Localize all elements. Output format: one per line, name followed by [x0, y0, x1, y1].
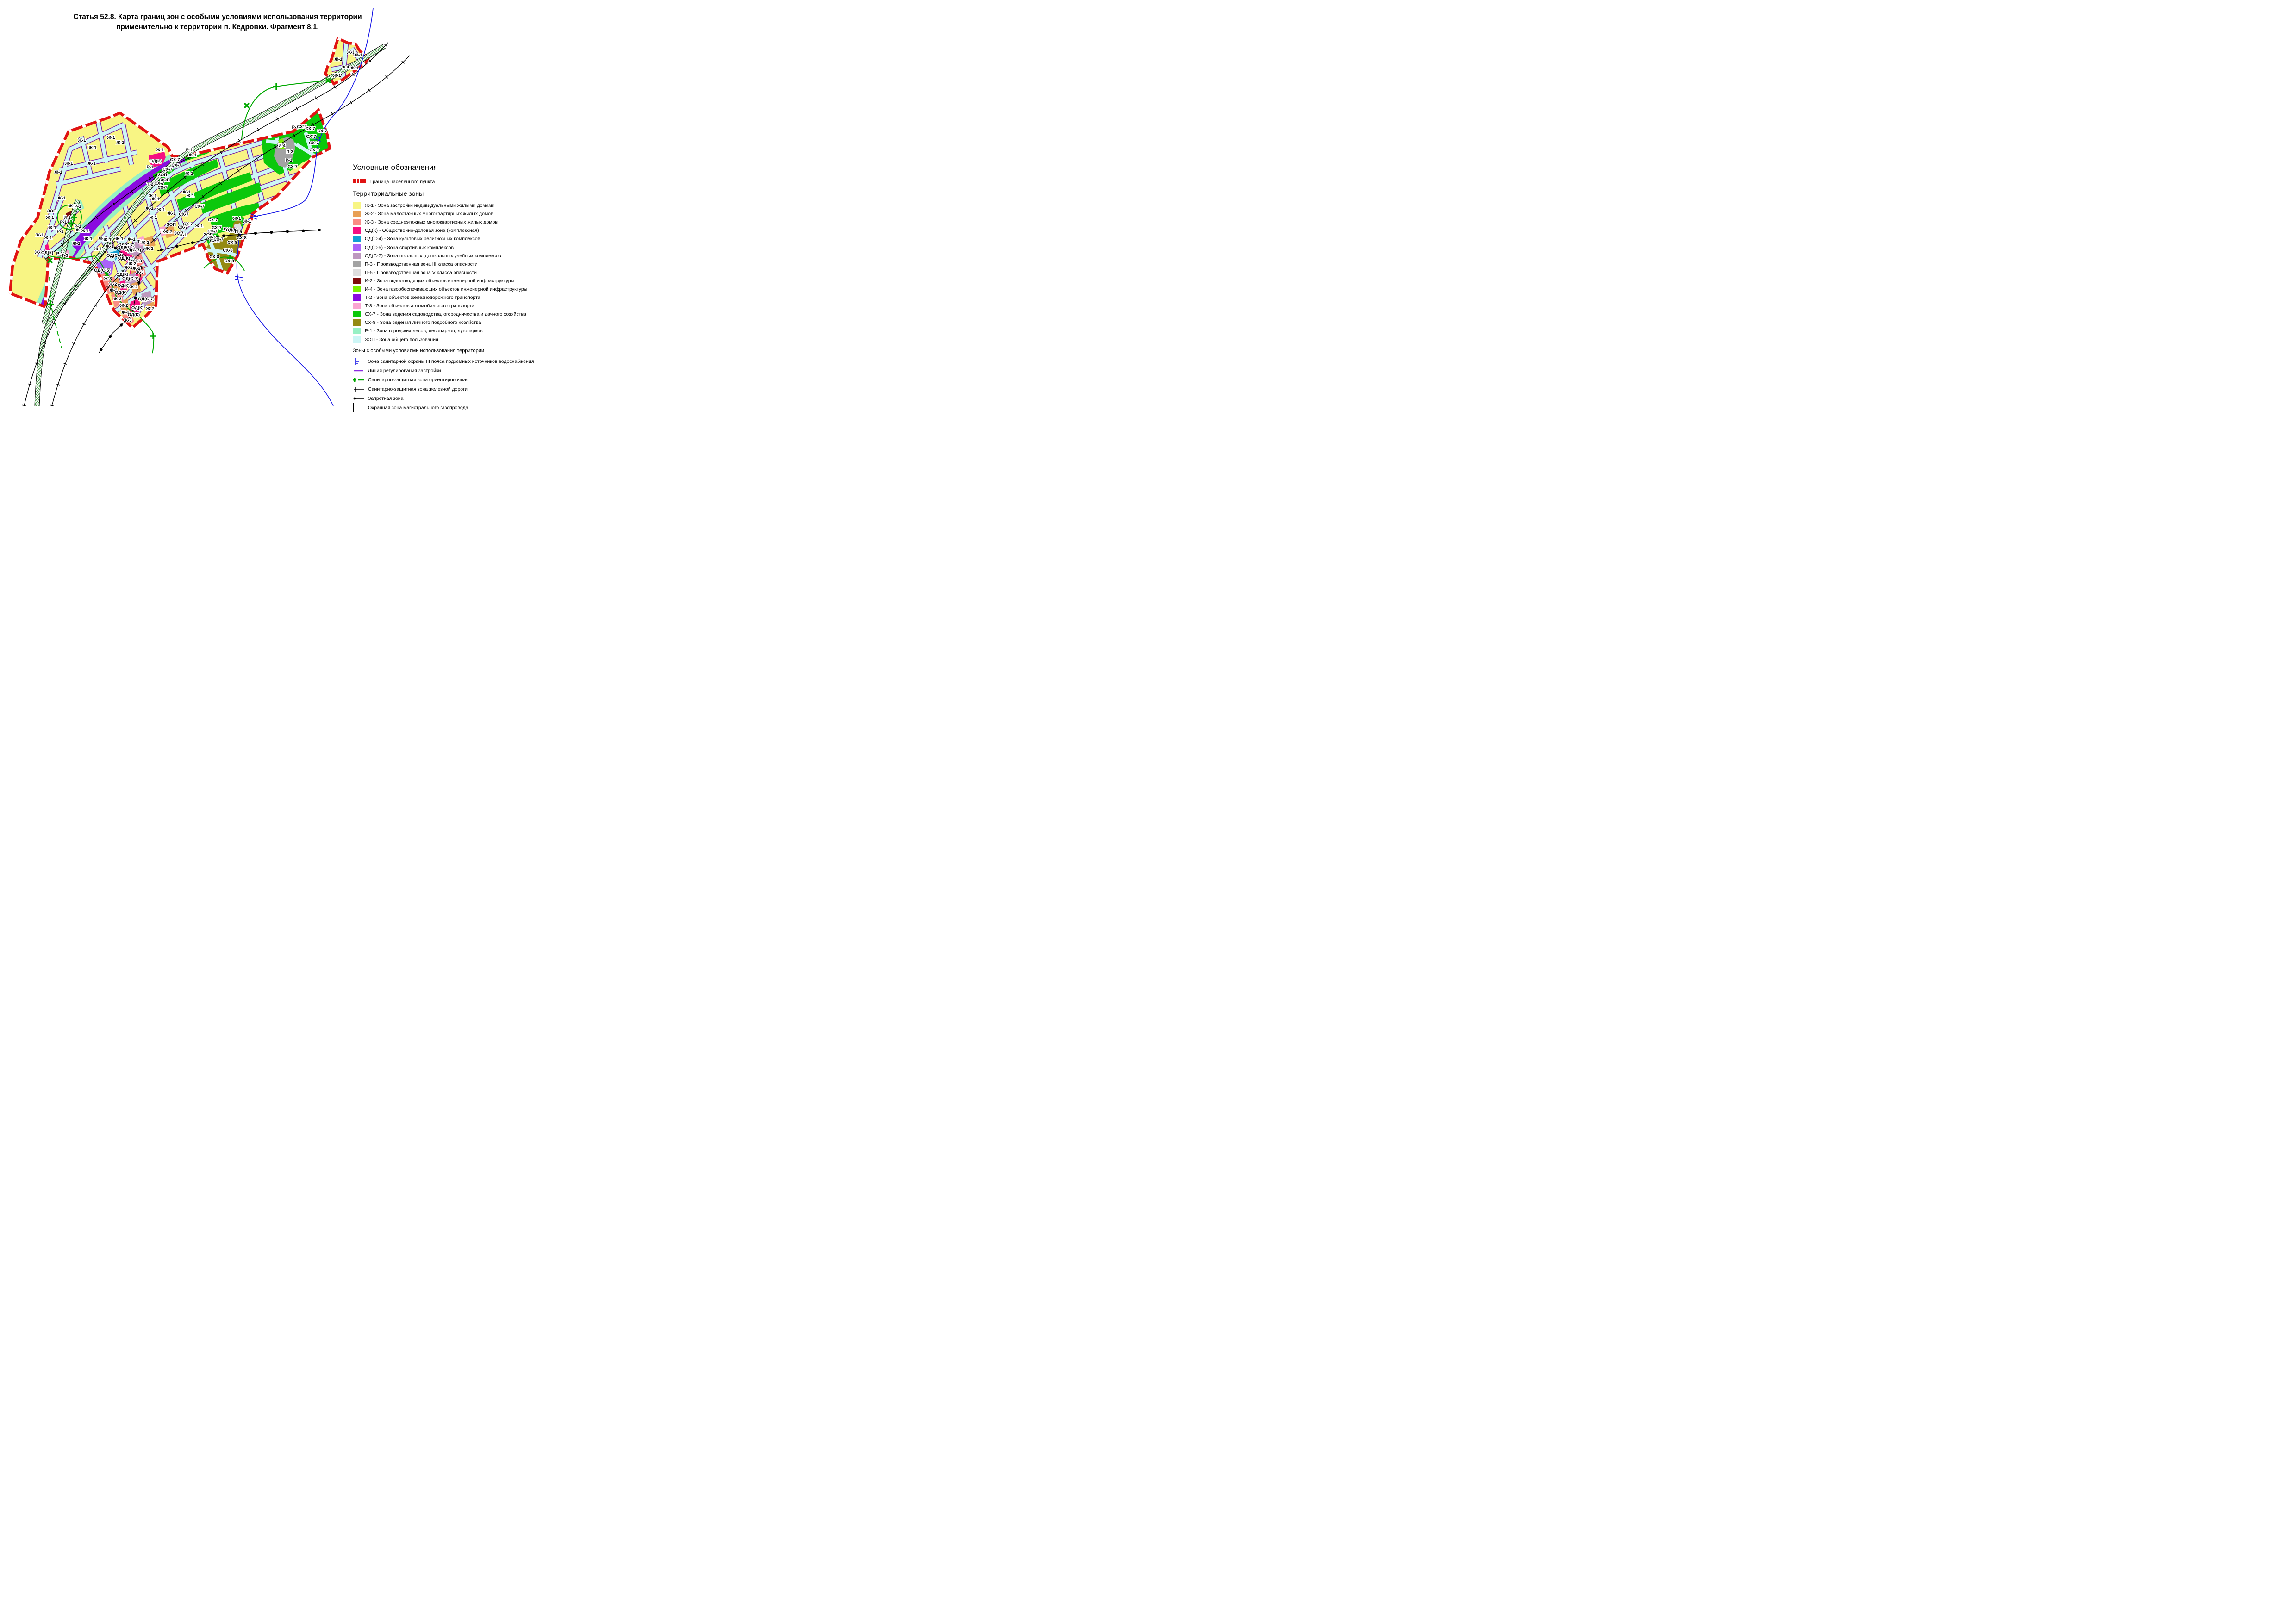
zone-label: ОД(К): [115, 290, 127, 295]
zone-label: Ж-1: [35, 233, 44, 238]
zone-label: Ж-1: [57, 196, 66, 201]
legend: Условные обозначения Граница населенного…: [353, 163, 574, 413]
zone-label: Ж-1: [84, 236, 93, 242]
zone-label: Ж-1: [145, 206, 154, 211]
zone-swatch-ods5: [353, 244, 361, 251]
zone-label: Ж-2: [119, 303, 128, 308]
zone-label: СХ-8: [223, 248, 232, 253]
zone-label: Ж-3: [135, 270, 143, 275]
zone-label: Р-1: [60, 220, 68, 225]
zone-label: Ж-1: [185, 171, 193, 176]
zone-label-zh2: Ж-2 - Зона малоэтажных многоквартирных ж…: [365, 211, 493, 217]
legend-header: Условные обозначения: [353, 163, 574, 172]
boundary-symbol: [353, 179, 367, 185]
zone-swatch-ods7: [353, 253, 361, 259]
zone-label: ОД(К): [150, 159, 162, 164]
zone-label: И-4: [278, 143, 286, 149]
zone-label: П-5: [235, 230, 242, 235]
zone-label: СХ-7: [213, 237, 223, 242]
zone-label: ЗОП: [167, 222, 176, 227]
zone-label: Р-1: [186, 148, 193, 153]
zone-label: Ж-1: [232, 216, 241, 221]
legend-zone-item-i2: И-2 - Зона водоотводящих объектов инжене…: [353, 277, 574, 285]
special-label: Запретная зона: [368, 396, 403, 401]
legend-boundary-item: Граница населенного пункта: [353, 179, 574, 185]
zone-label: Т-3: [62, 253, 68, 258]
title-line-2: применительно к территории п. Кедровки. …: [69, 22, 366, 32]
legend-zone-item-sx8: СХ-8 - Зона ведения личного подсобного х…: [353, 318, 574, 327]
zone-label: Ж-1: [354, 53, 362, 58]
zone-swatch-zh2: [353, 211, 361, 217]
zone-label: Ж-1: [88, 145, 97, 150]
legend-zone-item-p3: П-3 - Производственная зона III класса о…: [353, 260, 574, 268]
zone-list: Ж-1 - Зона застройки индивидуальными жил…: [353, 201, 574, 344]
zone-label: ЗОП: [342, 65, 351, 70]
zone-label: П-3: [286, 149, 293, 155]
zone-label: СХ-7: [178, 225, 187, 230]
zone-label-zh3: Ж-3 - Зона среднеэтажных многоквартирных…: [365, 219, 498, 225]
legend-zone-item-zh2: Ж-2 - Зона малоэтажных многоквартирных ж…: [353, 210, 574, 218]
zone-label: ОД(К): [131, 305, 143, 311]
zone-label: Ж-1: [116, 140, 125, 145]
zone-label: Р-1: [75, 204, 82, 209]
zone-label: Ж-1: [45, 215, 54, 220]
zone-label: Ж-2: [124, 265, 132, 270]
legend-special-item-forbidden-zone-line: Запретная зона: [353, 394, 574, 403]
legend-special-item-railway-sanitary-line: Санитарно-защитная зона железной дороги: [353, 385, 574, 394]
legend-zone-item-i4: И-4 - Зона газообеспечивающих объектов и…: [353, 285, 574, 293]
zone-label: Ж-1: [94, 247, 102, 252]
zone-label-r1: Р-1 - Зона городских лесов, лесопарков, …: [365, 328, 483, 334]
zone-label: Ж-1: [106, 135, 115, 140]
zone-label-i4: И-4 - Зона газообеспечивающих объектов и…: [365, 286, 527, 292]
zone-swatch-p3: [353, 261, 361, 267]
zone-swatch-sx7: [353, 311, 361, 317]
legend-zone-item-sx7: СХ-7 - Зона ведения садоводства, огородн…: [353, 310, 574, 318]
zone-label: Ж-1: [167, 211, 176, 216]
zone-label: ОД(С-7): [122, 276, 139, 281]
zone-label: СХ-7: [171, 163, 181, 168]
zone-label: Ж-1: [44, 236, 52, 241]
zone-swatch-sx8: [353, 319, 361, 326]
zone-label: ОД(К): [118, 256, 130, 261]
legend-zone-item-zop: ЗОП - Зона общего пользования: [353, 336, 574, 344]
zone-swatch-i2: [353, 278, 361, 284]
regulation-line-icon: [353, 367, 365, 375]
page-title: Статья 52.8. Карта границ зон с особыми …: [69, 12, 366, 33]
legend-zone-item-t2: Т-2 - Зона объектов железнодорожного тра…: [353, 293, 574, 302]
zone-label: Ж-1: [334, 57, 343, 62]
zone-label-ods4: ОД(С-4) - Зона культовых религиозных ком…: [365, 236, 480, 242]
zones-section-header: Территориальные зоны: [353, 190, 574, 197]
legend-special-item-pipeline-protection-area: Охранная зона магистрального газопровода: [353, 404, 574, 412]
zone-label: ОД(К): [41, 250, 53, 255]
zone-label: ЗОП: [47, 209, 56, 214]
zone-label: Ж-2: [108, 282, 117, 287]
zone-label: СХ-8: [227, 240, 237, 245]
zone-label: Ж-1: [77, 138, 86, 143]
zone-swatch-t3: [353, 303, 361, 309]
zone-label: СХ-8: [224, 259, 234, 264]
railway-sanitary-line-icon: [353, 385, 365, 393]
legend-zone-item-t3: Т-3 - Зона объектов автомобильного транс…: [353, 302, 574, 310]
zone-label: ЗОП: [161, 178, 170, 183]
zone-label: Р-1: [147, 165, 154, 170]
zone-label: Ж-1: [156, 148, 164, 153]
zone-label: Ж-1: [156, 207, 165, 212]
special-zone-list: Зона санитарной охраны III пояса подземн…: [353, 357, 574, 412]
zone-label: Ж-1: [194, 224, 203, 229]
legend-zone-item-r1: Р-1 - Зона городских лесов, лесопарков, …: [353, 327, 574, 335]
zone-label: СХ-8: [237, 236, 246, 241]
special-section-header: Зоны с особыми условиями использования т…: [353, 348, 574, 354]
zone-label: СХ-7: [306, 134, 316, 139]
legend-special-item-regulation-line: Линия регулирования застройки: [353, 367, 574, 375]
zone-label: Ж-1: [81, 229, 89, 234]
zone-label: Ж-2: [129, 285, 137, 290]
water-protection-line-icon: [353, 357, 365, 366]
zone-label: Т-2: [147, 182, 153, 187]
zone-label: Ж-1: [64, 161, 73, 166]
legend-zone-item-odk: ОД(К) - Общественно-деловая зона (компле…: [353, 226, 574, 235]
zone-label: Ж-1: [115, 236, 124, 242]
zone-label: Ж-1: [186, 193, 194, 199]
zone-label: Ж-3: [103, 276, 112, 281]
zone-label-t3: Т-3 - Зона объектов автомобильного транс…: [365, 303, 474, 309]
zone-label: Ж-1: [350, 66, 359, 71]
zone-label: Ж-2: [145, 306, 154, 311]
zone-label: Ж-1: [188, 153, 197, 158]
zone-label: Ж-1: [178, 233, 187, 238]
zone-label: ОД(С-7): [138, 297, 155, 302]
zone-swatch-r1: [353, 328, 361, 334]
zone-swatch-zop: [353, 336, 361, 343]
zone-label: Ж-1: [87, 161, 96, 166]
zone-label-ods7: ОД(С-7) - Зона школьных, дошкольных учеб…: [365, 253, 501, 259]
zone-label: Ж-1: [243, 219, 251, 224]
zone-label: Ж-1: [149, 215, 157, 220]
zone-label: СХ-7: [194, 204, 204, 209]
zone-swatch-zh3: [353, 219, 361, 225]
zone-label: Ж-1: [332, 73, 341, 78]
legend-zone-item-zh1: Ж-1 - Зона застройки индивидуальными жил…: [353, 201, 574, 210]
zone-label: СХ-7: [179, 212, 188, 217]
zone-swatch-odk: [353, 227, 361, 234]
zone-label: Ж-3: [123, 318, 131, 323]
zone-label: Ж-2: [141, 240, 149, 245]
zone-label: СХ-7: [305, 126, 315, 131]
legend-zone-item-zh3: Ж-3 - Зона среднеэтажных многоквартирных…: [353, 218, 574, 226]
legend-special-item-sanitary-approx-line: Санитарно-защитная зона ориентировочная: [353, 376, 574, 385]
zone-label: Ж-1: [346, 50, 355, 55]
zone-label: Ж-1: [127, 237, 136, 242]
zone-swatch-p5: [353, 269, 361, 276]
legend-zone-item-ods7: ОД(С-7) - Зона школьных, дошкольных учеб…: [353, 252, 574, 260]
zone-label: СХ-7: [309, 141, 318, 146]
zone-label-sx7: СХ-7 - Зона ведения садоводства, огородн…: [365, 311, 526, 317]
zone-label: СХ-7: [287, 164, 297, 169]
legend-zone-item-ods4: ОД(С-4) - Зона культовых религиозных ком…: [353, 235, 574, 243]
legend-zone-item-p5: П-5 - Производственная зона V класса опа…: [353, 268, 574, 277]
legend-zone-item-ods5: ОД(С-5) - Зона спортивных комплексов: [353, 243, 574, 251]
zone-label-p5: П-5 - Производственная зона V класса опа…: [365, 270, 477, 275]
zone-label-zh1: Ж-1 - Зона застройки индивидуальными жил…: [365, 203, 495, 208]
legend-boundary-label: Граница населенного пункта: [370, 179, 435, 185]
zone-label: Ж-1: [105, 244, 114, 249]
zone-swatch-t2: [353, 294, 361, 301]
zone-label: Ж-1: [103, 237, 112, 243]
zone-label: СХ-7: [170, 157, 180, 162]
zone-label: Ж-1: [54, 170, 62, 175]
zone-label: СХ-8: [209, 255, 219, 260]
special-label: Санитарно-защитная зона ориентировочная: [368, 377, 468, 383]
sanitary-approx-line-icon: [353, 376, 365, 384]
zone-label-t2: Т-2 - Зона объектов железнодорожного тра…: [365, 295, 480, 300]
zone-label-p3: П-3 - Производственная зона III класса о…: [365, 261, 478, 267]
zone-label: Р-1: [57, 229, 64, 234]
zone-swatch-i4: [353, 286, 361, 292]
zone-label: СХ-7: [317, 129, 327, 134]
zone-swatch-zh1: [353, 202, 361, 209]
title-line-1: Статья 52.8. Карта границ зон с особыми …: [69, 12, 366, 22]
zone-swatch-ods4: [353, 236, 361, 242]
zone-label: СХ-7: [208, 218, 218, 223]
zone-label-sx8: СХ-8 - Зона ведения личного подсобного х…: [365, 320, 481, 325]
zone-label: Ж-2: [145, 246, 153, 251]
special-label: Линия регулирования застройки: [368, 368, 441, 373]
zone-label: ОД(С-5): [94, 268, 111, 273]
zone-label: Ж-2: [163, 230, 172, 235]
forbidden-zone-line-icon: [353, 394, 365, 403]
zone-label: СХ-7: [309, 148, 319, 153]
zone-label: СХ-7: [162, 167, 172, 172]
zone-label-zop: ЗОП - Зона общего пользования: [365, 337, 438, 342]
zone-label: ОД(К): [128, 312, 140, 317]
zone-label: Ж-1: [72, 241, 81, 246]
zone-label-odk: ОД(К) - Общественно-деловая зона (компле…: [365, 228, 479, 233]
pipeline-protection-area-icon: [353, 404, 365, 412]
zone-label: ОД(С-7): [125, 248, 141, 253]
zone-label-i2: И-2 - Зона водоотводящих объектов инжене…: [365, 278, 514, 284]
zone-label: Ж-1: [151, 197, 160, 202]
legend-special-item-water-protection-line: Зона санитарной охраны III пояса подземн…: [353, 357, 574, 366]
zone-label: Ж-1: [48, 225, 56, 230]
special-label: Санитарно-защитная зона железной дороги: [368, 386, 468, 392]
zone-label: ЗОП: [158, 173, 167, 178]
special-label: Охранная зона магистрального газопровода: [368, 405, 468, 410]
zone-label: СХ-7: [157, 185, 167, 190]
zone-label: Ж-3: [113, 297, 121, 302]
special-label: Зона санитарной охраны III пояса подземн…: [368, 359, 534, 364]
zone-label: Р-1: [286, 158, 293, 163]
zone-label-ods5: ОД(С-5) - Зона спортивных комплексов: [365, 245, 454, 250]
zone-label: ОД(К): [118, 283, 130, 288]
